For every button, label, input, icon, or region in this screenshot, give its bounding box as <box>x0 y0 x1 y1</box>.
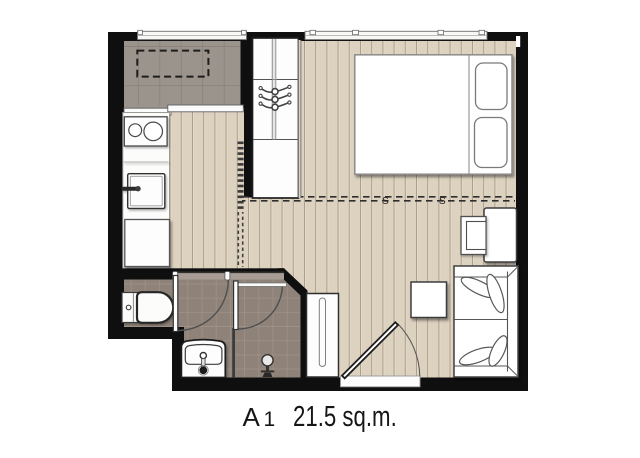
svg-text:S: S <box>382 196 389 207</box>
svg-text:S: S <box>439 196 446 207</box>
svg-text:A: A <box>243 402 261 432</box>
svg-text:21.5 sq.m.: 21.5 sq.m. <box>293 401 397 432</box>
svg-text:1: 1 <box>264 408 276 431</box>
